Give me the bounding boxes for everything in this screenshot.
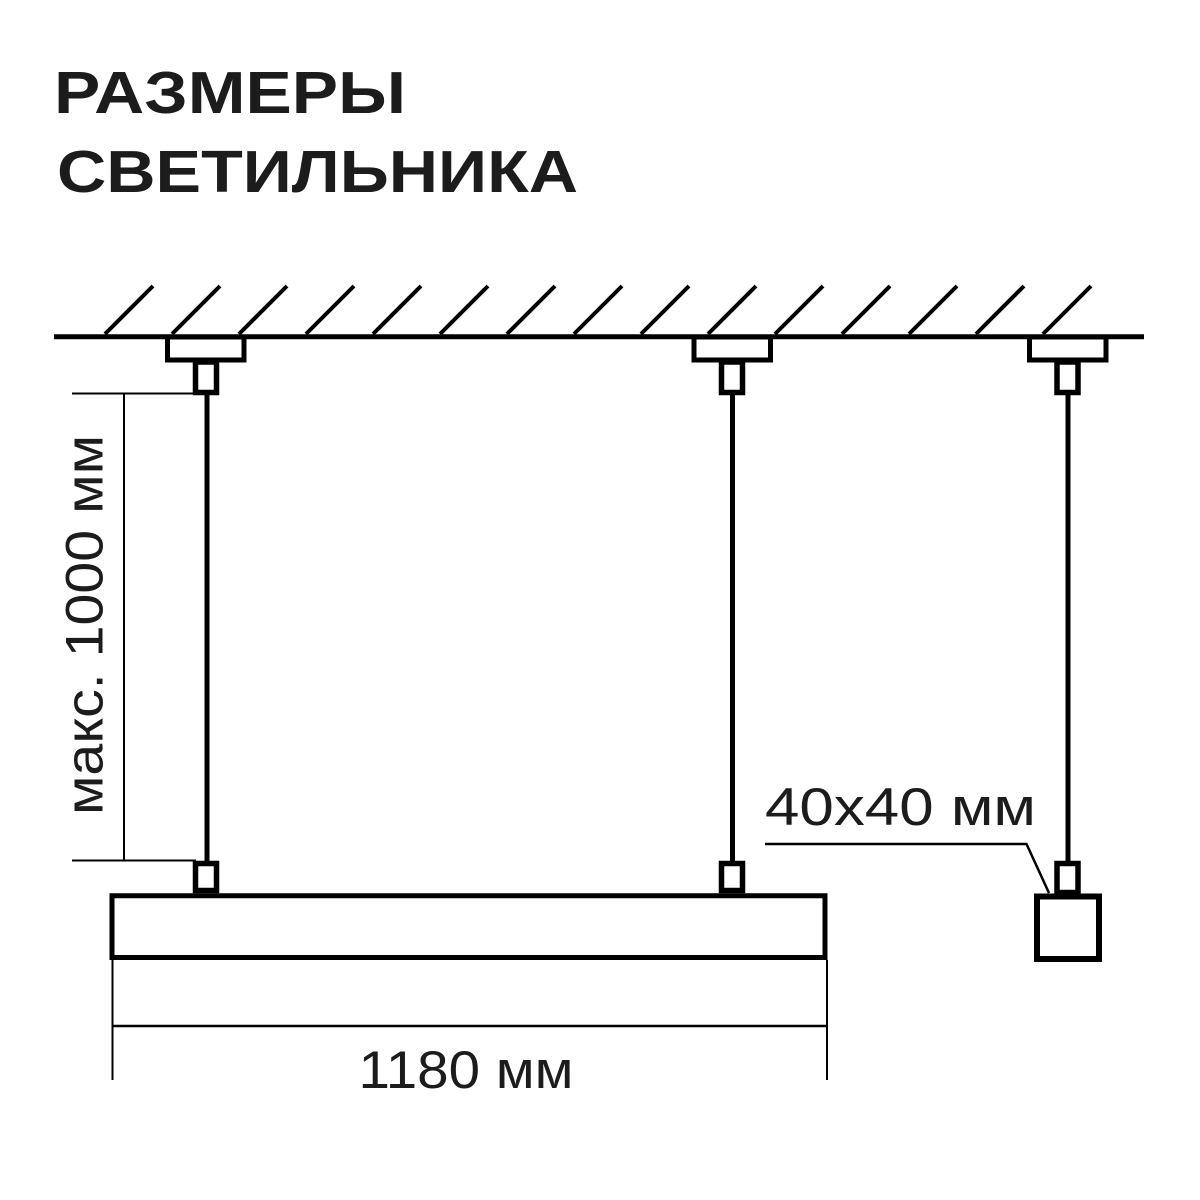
- svg-text:40x40 мм: 40x40 мм: [765, 778, 1036, 837]
- svg-text:макс. 1000 мм: макс. 1000 мм: [56, 435, 115, 815]
- svg-text:1180 мм: 1180 мм: [359, 1041, 574, 1100]
- svg-text:РАЗМЕРЫ: РАЗМЕРЫ: [54, 60, 406, 126]
- svg-text:СВЕТИЛЬНИКА: СВЕТИЛЬНИКА: [57, 139, 578, 205]
